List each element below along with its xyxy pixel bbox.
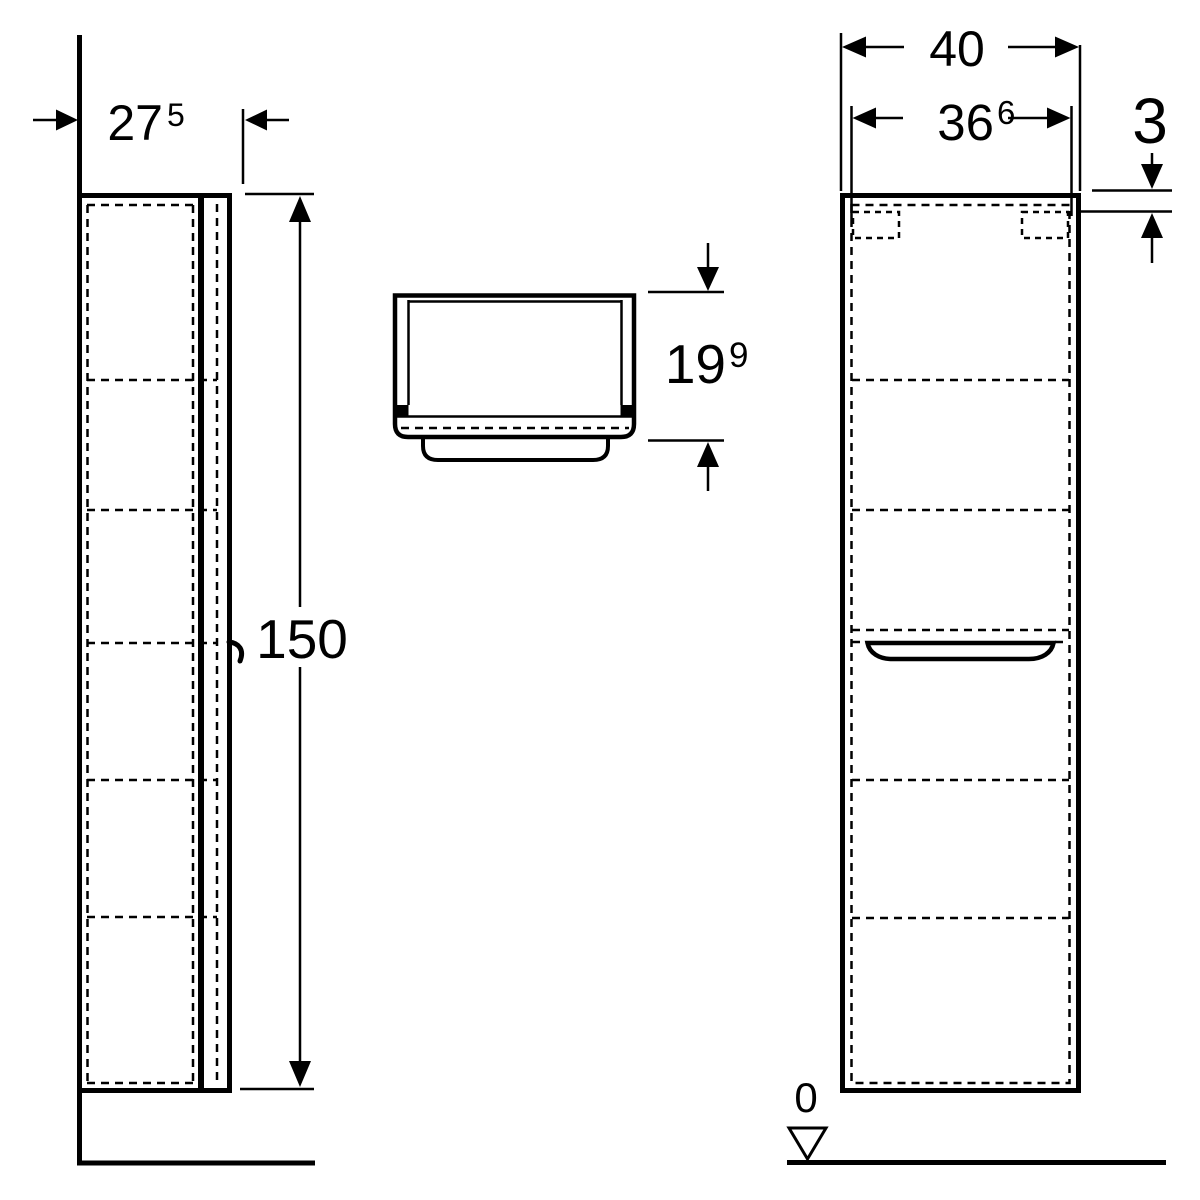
- dim-inner-width-label: 36: [937, 94, 994, 151]
- mount-bracket-left: [853, 212, 899, 238]
- dim-height: 150: [240, 194, 348, 1089]
- hinge-block-left: [395, 405, 409, 416]
- dim-depth-superscript: 5: [167, 97, 185, 133]
- arrow-up-icon: [697, 442, 719, 467]
- arrow-right-icon: [56, 110, 78, 131]
- arrow-left-icon: [245, 110, 267, 131]
- dim-plan-depth: 19 9: [648, 243, 748, 491]
- dim-inner-width: 36 6: [852, 94, 1072, 219]
- handle-recess: [868, 643, 1054, 659]
- handle-plan-outline: [423, 438, 608, 460]
- arrow-up-icon: [289, 196, 311, 222]
- arrow-left-icon: [842, 37, 866, 58]
- dim-depth-label: 27: [107, 95, 163, 151]
- level-triangle-icon: [789, 1128, 826, 1159]
- dim-width-label: 40: [929, 21, 985, 77]
- cabinet-dimension-drawing: 27 5 150 19 9: [0, 0, 1200, 1200]
- dim-plan-depth-superscript: 9: [729, 336, 748, 375]
- arrow-left-icon: [853, 108, 877, 129]
- dim-depth: 27 5: [33, 95, 289, 184]
- dim-top-thickness: 3: [1077, 85, 1172, 263]
- dim-plan-depth-label: 19: [665, 333, 726, 395]
- floor-level-label: 0: [794, 1074, 817, 1121]
- arrow-down-icon: [1141, 164, 1163, 189]
- hinge-block-right: [621, 405, 635, 416]
- dim-top-thickness-label: 3: [1132, 85, 1168, 157]
- mount-bracket-right: [1022, 212, 1068, 238]
- arrow-right-icon: [1047, 108, 1071, 129]
- dim-inner-width-superscript: 6: [997, 94, 1015, 131]
- side-view: [77, 35, 315, 1165]
- arrow-right-icon: [1055, 37, 1079, 58]
- arrow-down-icon: [289, 1061, 311, 1087]
- plan-view: [395, 296, 635, 461]
- front-view: [843, 196, 1079, 1091]
- arrow-up-icon: [1141, 213, 1163, 238]
- technical-drawing-canvas: 27 5 150 19 9: [0, 0, 1200, 1200]
- dim-height-label: 150: [256, 608, 348, 670]
- arrow-down-icon: [697, 267, 719, 291]
